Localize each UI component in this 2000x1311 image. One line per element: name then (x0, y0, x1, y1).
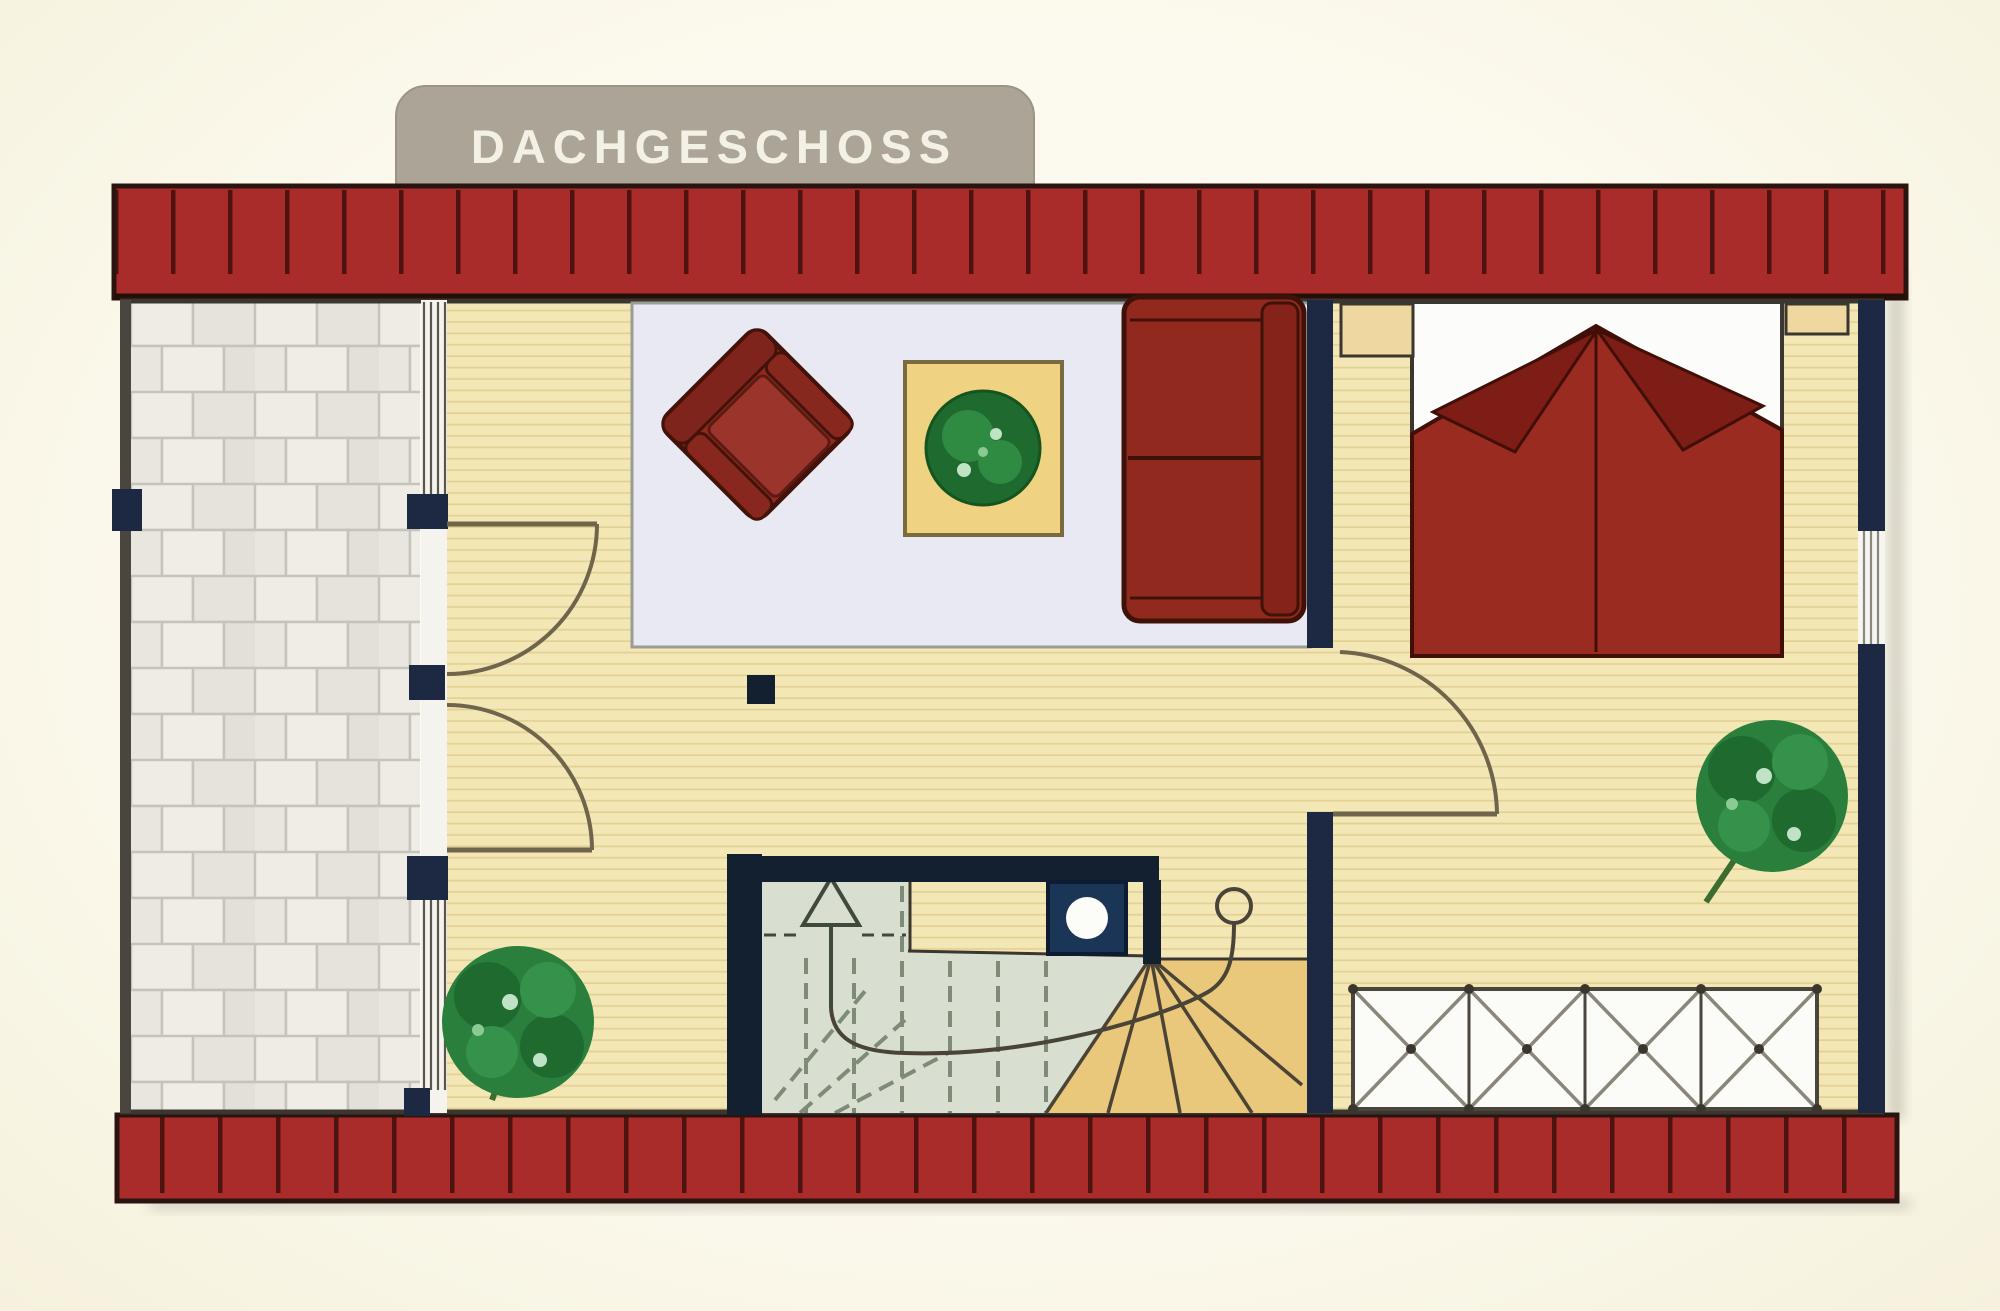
chimney-flue-opening (1066, 897, 1108, 939)
right-wall-shadow (1888, 270, 1904, 1120)
floorplan-dachgeschoss: DACHGESCHOSS (0, 0, 2000, 1311)
double-bed (1412, 302, 1782, 656)
roof-edge-top (114, 186, 1906, 298)
roof-top-band (114, 186, 1906, 298)
wardrobe-crossed (1348, 984, 1822, 1114)
plant-highlight (957, 463, 971, 477)
roof-bottom-band (117, 1115, 1897, 1201)
right-exterior-wall (1858, 300, 1885, 1113)
stair-wall-top (727, 856, 1159, 882)
potted-plant-table (926, 391, 1040, 505)
plant-leaf-cluster (1772, 788, 1836, 852)
partition-post-middle (409, 665, 445, 700)
interior-wall-lower (1307, 812, 1333, 1113)
plant-highlight (990, 428, 1002, 440)
floorplan-drawing: DACHGESCHOSS (0, 0, 2000, 1311)
nightstand-left (1341, 304, 1413, 356)
plant-leaf-cluster (520, 1014, 584, 1078)
right-wall (1858, 300, 1885, 1113)
plant-leaf-cluster (1718, 800, 1770, 852)
plant-leaf-cluster (1772, 734, 1828, 790)
structural-post (747, 675, 775, 704)
plant-highlight (1787, 827, 1801, 841)
floor-title: DACHGESCHOSS (471, 120, 957, 173)
plant-highlight (978, 447, 988, 457)
plant-highlight (533, 1053, 547, 1067)
interior-wall-upper (1307, 300, 1333, 648)
nightstand-right (1786, 304, 1848, 334)
left-wall-post (112, 489, 142, 531)
left-wall-line (120, 300, 131, 1113)
bedroom-window (1858, 531, 1885, 644)
partition-post-top (407, 494, 448, 529)
coffee-table (905, 362, 1062, 535)
partition-post-base (404, 1088, 430, 1116)
sofa (1124, 297, 1304, 621)
stair-wall-left (727, 854, 762, 1115)
plant-highlight (1756, 768, 1772, 784)
plant-leaf-cluster (978, 440, 1022, 484)
terrace-floor (131, 300, 420, 1113)
plant-highlight (1726, 798, 1738, 810)
chimney-flue (1048, 882, 1126, 954)
sofa-backrest (1262, 303, 1298, 615)
plant-highlight (472, 1024, 484, 1036)
roof-edge-bottom (117, 1115, 1897, 1201)
partition-post-bottom (407, 856, 448, 900)
stair-wall-stub (1143, 880, 1161, 964)
plant-highlight (502, 994, 518, 1010)
plant-foliage (1696, 720, 1848, 872)
plant-leaf-cluster (520, 962, 576, 1018)
